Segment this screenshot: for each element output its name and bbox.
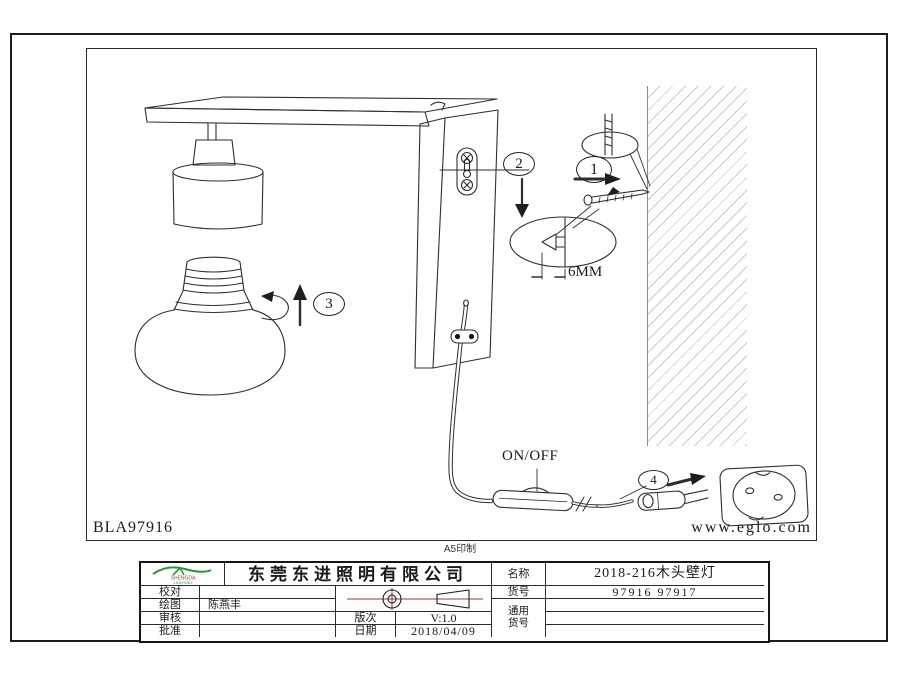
on-off-label: ON/OFF [502, 448, 558, 465]
projection-symbol-cell [336, 586, 492, 612]
socket-drawing [720, 465, 809, 526]
assembly-diagram [86, 48, 815, 539]
first-angle-projection-icon [337, 587, 491, 611]
step-circle-3: 3 [313, 292, 345, 316]
field-review-value [200, 612, 336, 625]
step-circle-1: 1 [576, 156, 612, 183]
field-version-label: 版次 [336, 612, 396, 625]
website-url: www.eglo.com [598, 519, 812, 537]
field-review-label: 审核 [141, 612, 200, 625]
lamp-holder-drawing [173, 123, 263, 229]
field-approve-label: 批准 [141, 625, 200, 637]
switch-drawing [493, 469, 574, 511]
field-generic-itemno-label: 通用 货号 [492, 599, 546, 637]
step-circle-2: 2 [503, 152, 535, 176]
drawing-code: BLA97916 [93, 519, 173, 537]
field-drawn-value: 陈燕丰 [200, 599, 336, 612]
field-name-value: 2018-216木头壁灯 [546, 563, 764, 586]
company-name: 东莞东进照明有限公司 [225, 563, 492, 586]
wood-arm-drawing [145, 97, 498, 368]
step-circle-4: 4 [638, 470, 669, 490]
field-itemno-label: 货号 [492, 586, 546, 599]
field-name-label: 名称 [492, 563, 546, 586]
bulb-drawing [135, 257, 285, 395]
step3-arrows [261, 284, 307, 325]
generic-itemno-blank-row [546, 599, 764, 612]
instruction-sheet: BLA97916 www.eglo.com ON/OFF 6MM A5印制 1 … [0, 0, 900, 675]
generic-itemno-blank-row [546, 625, 764, 637]
field-drawn-label: 绘图 [141, 599, 200, 612]
title-block: SHENGDA LIGHTING 东莞东进照明有限公司 校对 绘图 陈燕丰 审核… [139, 561, 770, 643]
print-size-note: A5印制 [428, 540, 492, 555]
field-date-value: 2018/04/09 [396, 625, 492, 637]
field-itemno-value: 97916 97917 [546, 586, 764, 599]
logo-cell: SHENGDA LIGHTING [141, 563, 225, 586]
depth-label: 6MM [568, 264, 602, 281]
field-proofread-value [200, 586, 336, 599]
field-approve-value [200, 625, 336, 637]
field-date-label: 日期 [336, 625, 396, 637]
generic-itemno-blank-row [546, 612, 764, 625]
field-version-value: V:1.0 [396, 612, 492, 625]
svg-text:LIGHTING: LIGHTING [173, 580, 192, 585]
power-cable-drawing [451, 300, 491, 501]
field-proofread-label: 校对 [141, 586, 200, 599]
shengda-logo-icon: SHENGDA LIGHTING [145, 564, 221, 585]
